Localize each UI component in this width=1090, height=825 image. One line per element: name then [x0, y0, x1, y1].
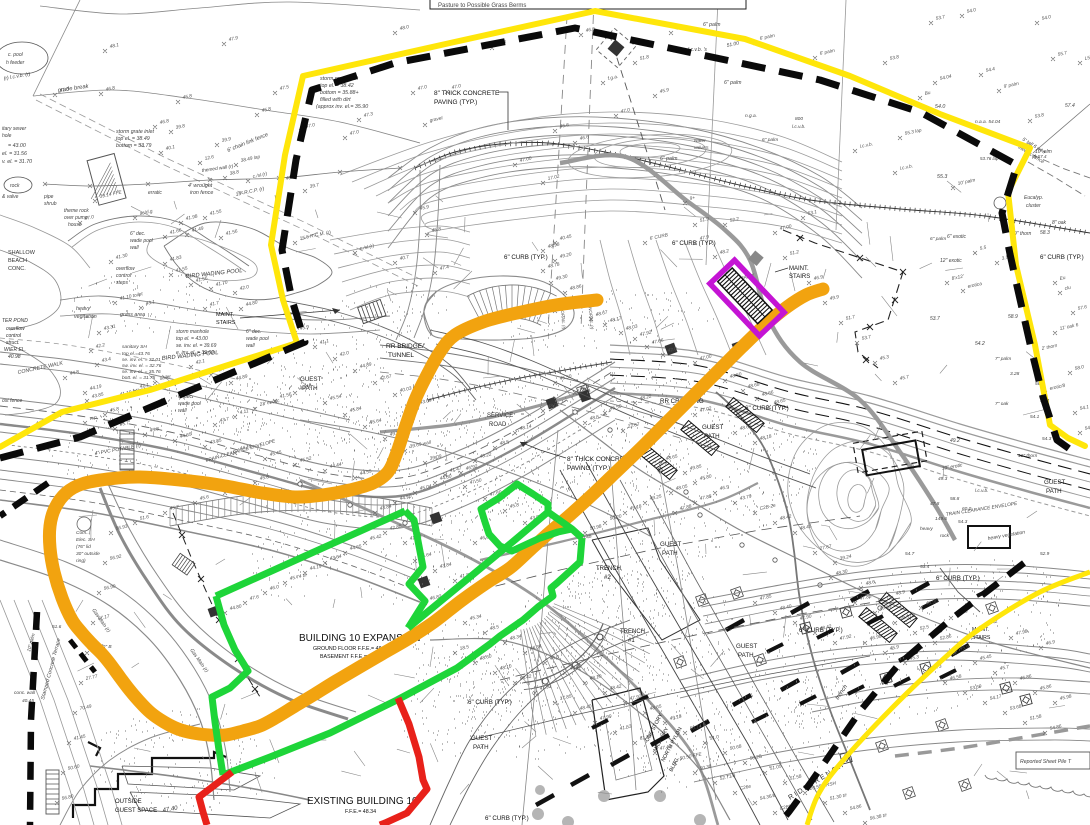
- svg-text:struct.: struct.: [6, 340, 20, 346]
- svg-text:wall: wall: [246, 343, 256, 349]
- svg-text:EXISTING BUILDING 10: EXISTING BUILDING 10: [307, 796, 418, 807]
- svg-text:vegitation: vegitation: [74, 314, 97, 320]
- svg-text:OUTSIDE: OUTSIDE: [115, 799, 142, 805]
- svg-text:(76" lid: (76" lid: [76, 544, 91, 550]
- svg-text:TRENCH: TRENCH: [620, 629, 645, 635]
- svg-text:3.28: 3.28: [1010, 371, 1020, 377]
- svg-text:se. inv. el. = 39.69: se. inv. el. = 39.69: [176, 343, 217, 349]
- svg-text:6" CURB (TYP.): 6" CURB (TYP.): [745, 405, 789, 412]
- svg-text:PATH: PATH: [738, 652, 754, 659]
- svg-text:grass area: grass area: [120, 312, 145, 318]
- svg-text:PATH: PATH: [662, 550, 678, 557]
- svg-text:#1: #1: [628, 638, 635, 644]
- svg-text:l.c.v.b.: l.c.v.b.: [792, 124, 806, 130]
- svg-text:GUEST: GUEST: [702, 424, 724, 431]
- svg-text:filled with dirt: filled with dirt: [320, 97, 351, 103]
- svg-text:el. = 31.56: el. = 31.56: [2, 151, 27, 157]
- svg-text:se. inv. el. = 32.01: se. inv. el. = 32.01: [122, 357, 161, 363]
- svg-text:WIER EL.: WIER EL.: [4, 347, 26, 353]
- svg-text:storm manhole: storm manhole: [176, 329, 209, 335]
- svg-text:ROAD: ROAD: [489, 422, 507, 428]
- svg-text:GUEST SPACE: GUEST SPACE: [115, 808, 157, 814]
- svg-text:top el. = 38.49: top el. = 38.49: [116, 136, 150, 142]
- svg-text:heavy: heavy: [76, 306, 90, 312]
- svg-text:TRENCH: TRENCH: [596, 566, 621, 572]
- svg-text:ost fence: ost fence: [2, 398, 23, 404]
- svg-text:PAVING (TYP.): PAVING (TYP.): [567, 465, 610, 472]
- svg-text:RR BRIDGE/: RR BRIDGE/: [386, 343, 424, 350]
- svg-text:n.g.a.: n.g.a.: [745, 114, 757, 119]
- svg-text:theme rock: theme rock: [64, 208, 89, 214]
- svg-text:58.3: 58.3: [1040, 230, 1050, 236]
- svg-text:6" palm: 6" palm: [660, 156, 678, 162]
- svg-text:57.4: 57.4: [1065, 103, 1075, 109]
- svg-text:60.0: 60.0: [962, 506, 972, 512]
- svg-text:53.4: 53.4: [920, 564, 930, 570]
- svg-text:58.8: 58.8: [950, 496, 960, 502]
- svg-text:6" palm: 6" palm: [930, 236, 946, 242]
- svg-text:F.F.E.= 48.34: F.F.E.= 48.34: [345, 809, 376, 815]
- svg-text:55.3: 55.3: [937, 174, 947, 180]
- svg-text:12" exotic: 12" exotic: [940, 258, 962, 264]
- svg-text:wade pool: wade pool: [130, 238, 154, 244]
- svg-text:l.c.v.b.: l.c.v.b.: [975, 488, 989, 494]
- svg-text:hole: hole: [2, 133, 12, 139]
- svg-text:51.6: 51.6: [52, 624, 62, 630]
- svg-text:top el.=43.76: top el.=43.76: [122, 351, 150, 357]
- svg-text:Pasture to Possible Grass Berm: Pasture to Possible Grass Berms: [438, 3, 526, 9]
- svg-text:800: 800: [795, 116, 803, 122]
- svg-text:54.1: 54.1: [1030, 414, 1040, 420]
- svg-text:TUNNEL: TUNNEL: [388, 352, 414, 359]
- svg-text:30" outside: 30" outside: [76, 551, 100, 557]
- svg-text:shrub: shrub: [44, 201, 57, 207]
- svg-text:6" CURB (TYP.): 6" CURB (TYP.): [504, 254, 548, 261]
- svg-text:4' wrought: 4' wrought: [188, 183, 213, 189]
- svg-text:7" palm: 7" palm: [995, 356, 1011, 362]
- svg-text:GUEST: GUEST: [1044, 479, 1066, 486]
- svg-text:SHALLOW: SHALLOW: [8, 250, 36, 256]
- svg-text:40.98: 40.98: [8, 354, 21, 360]
- svg-text:MAINT.: MAINT.: [216, 312, 235, 318]
- svg-text:49.3: 49.3: [938, 476, 948, 482]
- svg-text:erratic: erratic: [148, 190, 162, 196]
- svg-text:6" palm: 6" palm: [762, 137, 778, 143]
- svg-text:149.6: 149.6: [935, 516, 947, 522]
- svg-text:bott. el. = 31.75: bott. el. = 31.75: [122, 375, 156, 381]
- svg-text:PATH: PATH: [704, 433, 720, 440]
- svg-text:GUEST: GUEST: [660, 541, 682, 548]
- svg-text:storm grate inlet: storm grate inlet: [116, 129, 155, 135]
- svg-text:52.9: 52.9: [1040, 551, 1050, 557]
- svg-text:TER POND: TER POND: [2, 318, 28, 324]
- svg-text:GUEST: GUEST: [736, 643, 758, 650]
- svg-text:54.3: 54.3: [1042, 436, 1052, 442]
- svg-text:(r) 57.4: (r) 57.4: [1032, 154, 1047, 159]
- svg-text:& valve: & valve: [2, 194, 19, 200]
- svg-text:top el. = 43.00: top el. = 43.00: [176, 336, 208, 342]
- svg-text:sanitary SH: sanitary SH: [122, 344, 147, 350]
- svg-text:12" thorn: 12" thorn: [1018, 453, 1038, 459]
- svg-text:control: control: [116, 273, 132, 279]
- svg-text:6" CURB (TYP.): 6" CURB (TYP.): [936, 575, 980, 582]
- svg-text:itary sewer: itary sewer: [2, 126, 27, 132]
- svg-text:SERVICE: SERVICE: [487, 413, 513, 419]
- svg-text:58.9: 58.9: [1008, 314, 1018, 320]
- svg-text:n.a.a. 54.04: n.a.a. 54.04: [975, 119, 1001, 125]
- svg-text:6" exotic: 6" exotic: [947, 234, 967, 240]
- svg-text:6" CURB (TYP.): 6" CURB (TYP.): [485, 815, 529, 822]
- svg-text:6" palm: 6" palm: [703, 22, 721, 28]
- svg-text:h feeder: h feeder: [6, 60, 25, 66]
- svg-text:54.3: 54.3: [958, 519, 968, 525]
- svg-text:6" CURB (TYP.): 6" CURB (TYP.): [468, 699, 512, 706]
- svg-text:STAIRS: STAIRS: [789, 274, 810, 280]
- svg-text:bottom = 33.79: bottom = 33.79: [116, 143, 152, 149]
- svg-text:7" oak: 7" oak: [995, 401, 1009, 407]
- svg-text:54.0: 54.0: [935, 104, 945, 110]
- svg-text:wall: wall: [178, 408, 188, 414]
- svg-text:6" dec.: 6" dec.: [130, 231, 145, 237]
- svg-text:9" thorn: 9" thorn: [1014, 231, 1032, 237]
- svg-text:(approx inv. el.= 35.90: (approx inv. el.= 35.90: [316, 104, 368, 110]
- svg-text:wall: wall: [130, 245, 140, 251]
- svg-text:cluster: cluster: [1026, 203, 1041, 209]
- svg-text:STAIRS: STAIRS: [972, 635, 991, 641]
- svg-text:rock: rock: [10, 183, 20, 189]
- svg-text:Elec. SH: Elec. SH: [76, 537, 95, 543]
- svg-text:se. inv. el. = 35.76: se. inv. el. = 35.76: [122, 369, 161, 375]
- svg-text:49.2: 49.2: [950, 438, 960, 444]
- svg-text:overflow: overflow: [116, 266, 135, 272]
- svg-text:valve's: valve's: [694, 145, 709, 151]
- svg-text:e. inv. el. = 39.09: e. inv. el. = 39.09: [176, 350, 214, 356]
- svg-text:6" CURB (TYP.): 6" CURB (TYP.): [1040, 254, 1084, 261]
- svg-text:Eucalyp.: Eucalyp.: [1024, 195, 1043, 201]
- svg-text:47.8: 47.8: [930, 501, 940, 507]
- svg-text:steps: steps: [116, 280, 128, 286]
- svg-text:8" THICK CONCRETE: 8" THICK CONCRETE: [434, 90, 500, 97]
- svg-text:v. el. = 31.70: v. el. = 31.70: [2, 159, 32, 165]
- svg-text:8" oak: 8" oak: [1052, 220, 1067, 226]
- svg-text:= 43.00: = 43.00: [8, 143, 26, 149]
- svg-text:wade pool: wade pool: [178, 401, 202, 407]
- svg-text:water: water: [694, 138, 706, 144]
- svg-text:6" CURB (TYP.): 6" CURB (TYP.): [672, 240, 716, 247]
- svg-text:ring): ring): [76, 558, 86, 564]
- svg-text:rock: rock: [940, 533, 950, 539]
- svg-text:wade pool: wade pool: [246, 336, 270, 342]
- svg-text:pipe: pipe: [43, 194, 54, 200]
- svg-text:CONC.: CONC.: [8, 266, 26, 272]
- svg-text:iron fence: iron fence: [190, 190, 213, 196]
- svg-text:PAVING (TYP.): PAVING (TYP.): [434, 99, 477, 106]
- svg-text:BEACH: BEACH: [8, 258, 27, 264]
- svg-text:53.7: 53.7: [930, 316, 940, 322]
- svg-text:control: control: [6, 333, 22, 339]
- svg-text:conc. wall: conc. wall: [14, 690, 36, 696]
- svg-text:STAIRS: STAIRS: [216, 320, 236, 326]
- svg-text:54.2: 54.2: [975, 341, 985, 347]
- svg-text:bottom = 35.88+: bottom = 35.88+: [320, 90, 359, 96]
- svg-text:54.7: 54.7: [905, 551, 915, 557]
- svg-text:PATH: PATH: [1046, 488, 1062, 495]
- svg-text:PATH: PATH: [473, 744, 489, 751]
- svg-text:GUEST: GUEST: [300, 376, 322, 383]
- svg-text:overflow: overflow: [6, 326, 25, 332]
- svg-text:c. pool: c. pool: [8, 52, 24, 58]
- svg-text:6" dec.: 6" dec.: [246, 329, 261, 335]
- svg-text:6" palm: 6" palm: [724, 80, 742, 86]
- svg-text:#2: #2: [604, 575, 611, 581]
- svg-text:Reported Sheet Pile T: Reported Sheet Pile T: [1020, 759, 1072, 765]
- svg-text:GUEST: GUEST: [471, 735, 493, 742]
- svg-text:heavy: heavy: [920, 526, 933, 532]
- svg-text:sw. inv. el. = 32.76: sw. inv. el. = 32.76: [122, 363, 162, 369]
- svg-text:MAINT.: MAINT.: [789, 266, 809, 272]
